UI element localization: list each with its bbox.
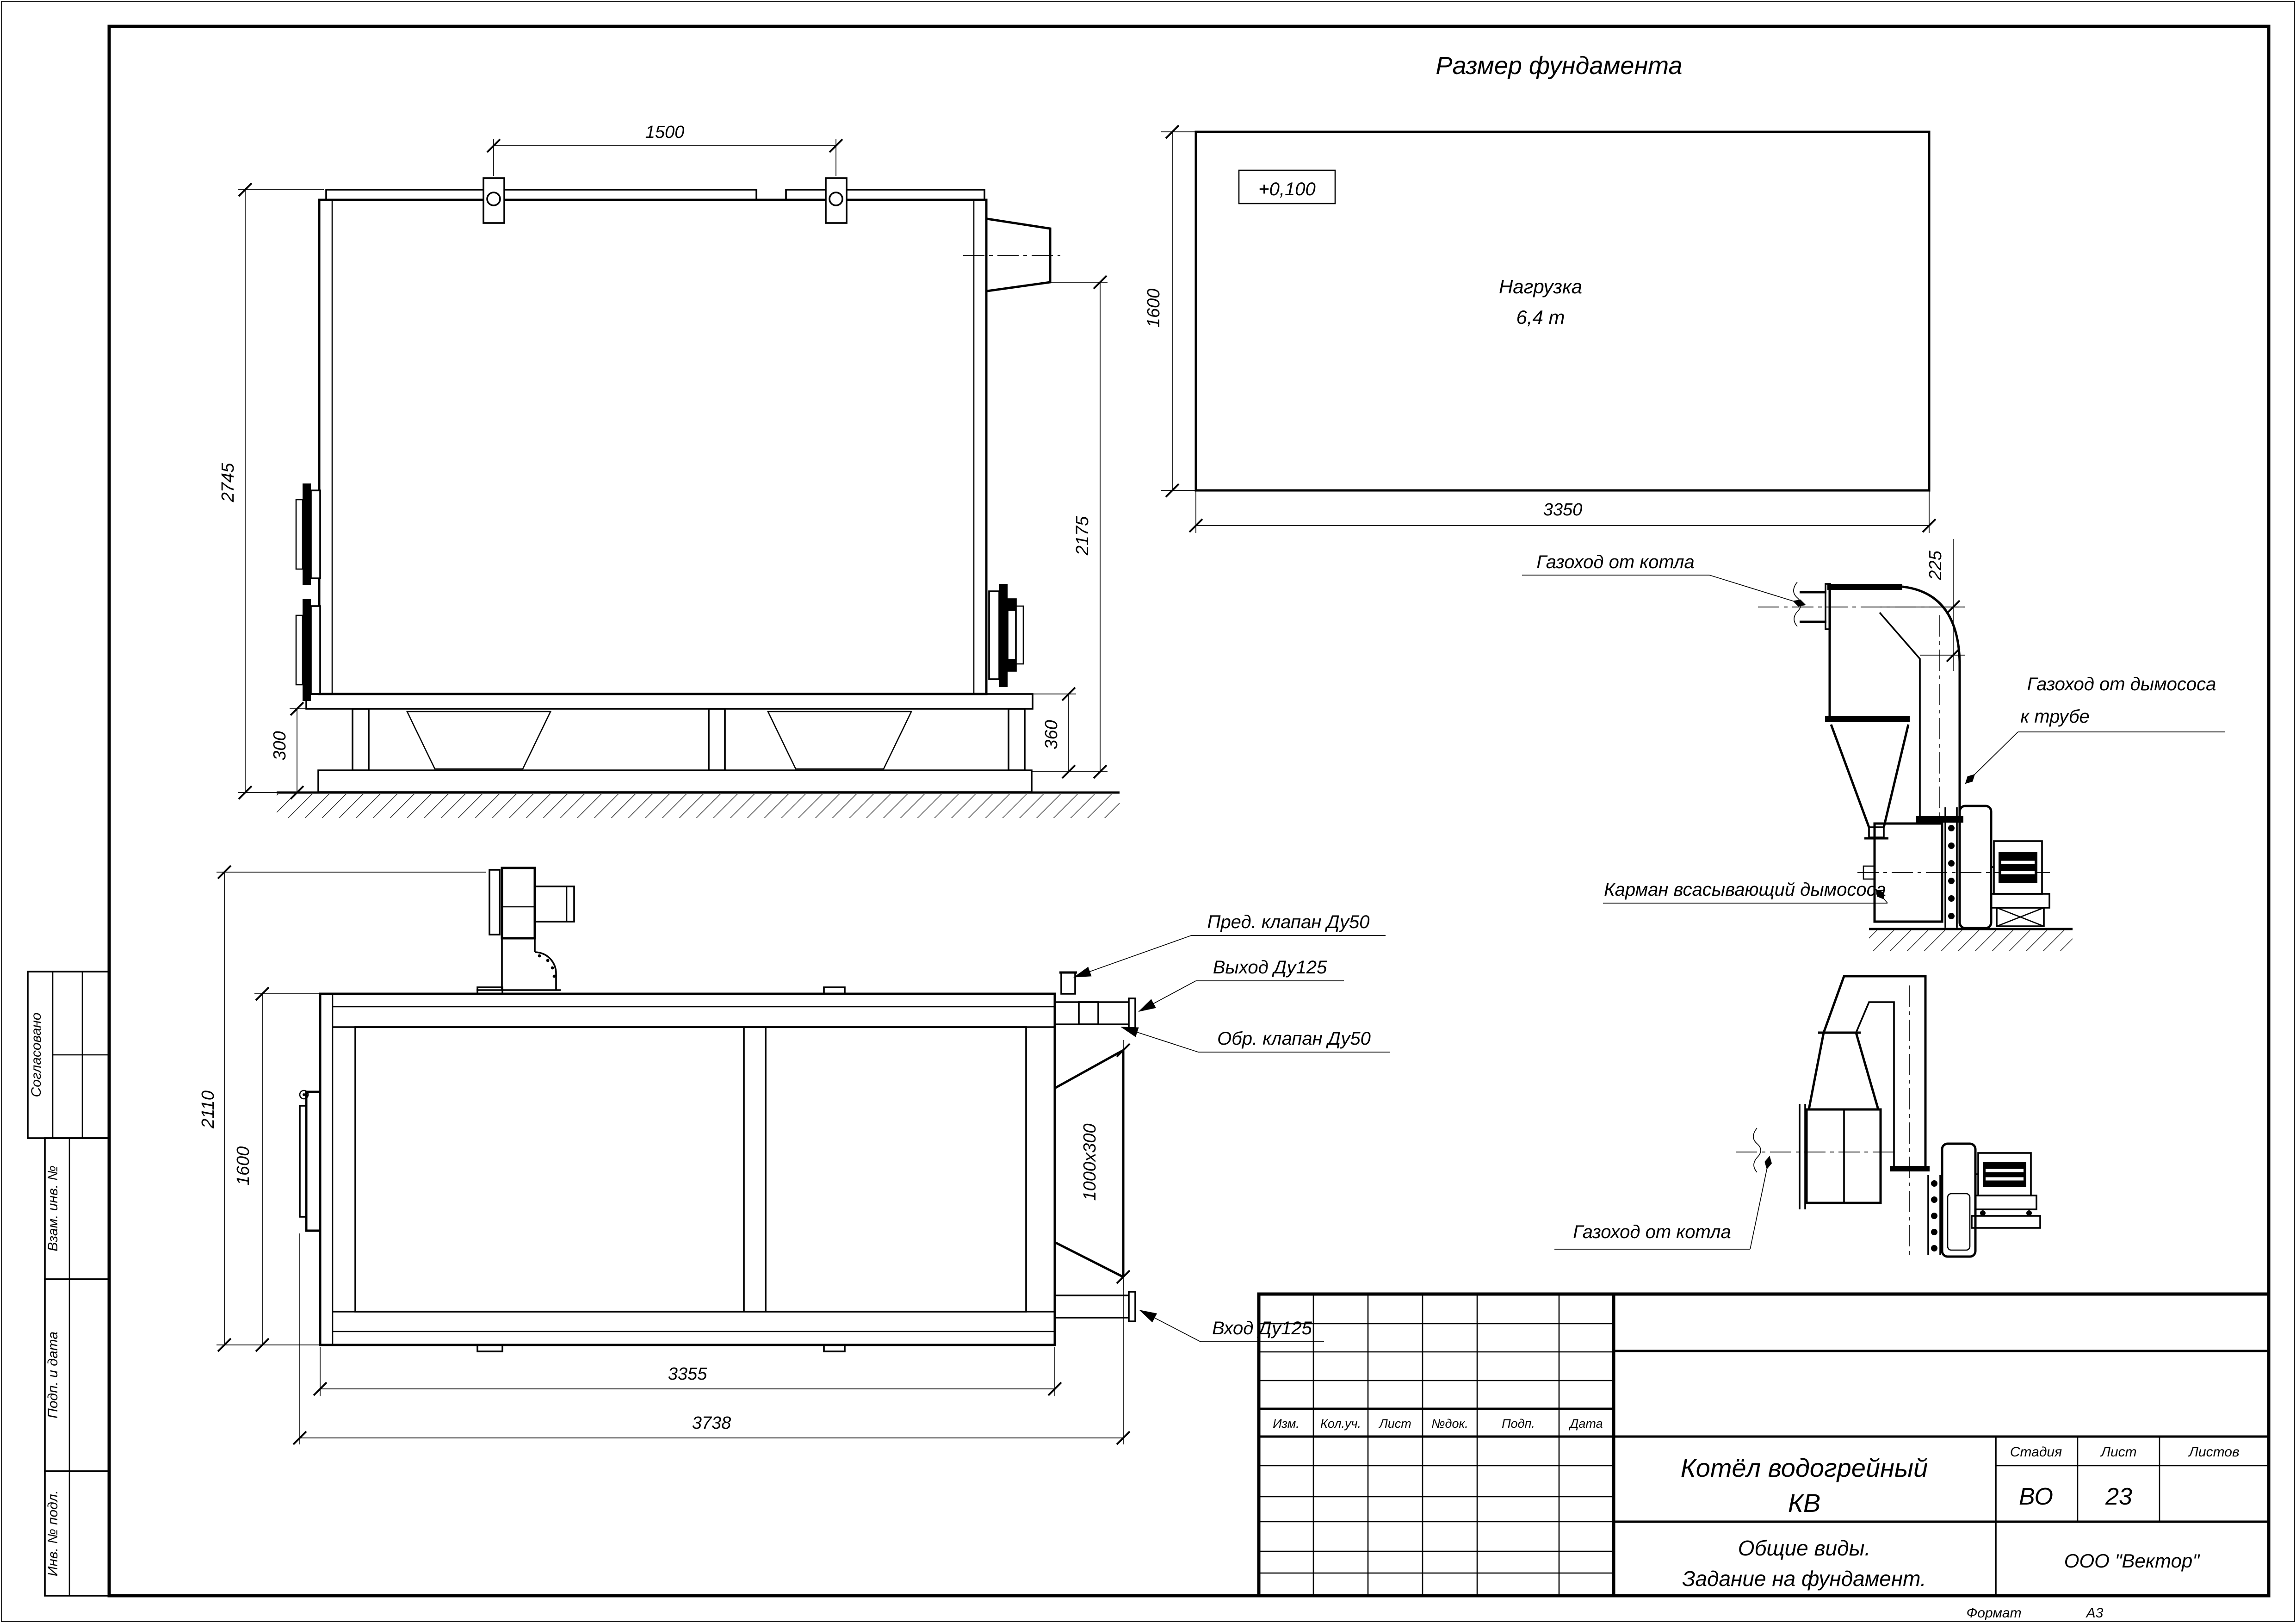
dim-3350: 3350 [1543, 500, 1583, 520]
fan-housing [1960, 806, 1991, 928]
rev-header-podp: Подп. [1502, 1417, 1535, 1431]
dim-1500: 1500 [645, 123, 685, 142]
doc-title-line2: Задание на фундамент. [1682, 1567, 1926, 1591]
doc-name-line2: КВ [1788, 1488, 1820, 1518]
flue-outlet [963, 219, 1060, 291]
plan-body [320, 994, 1055, 1345]
rev-header-izm: Изм. [1273, 1417, 1300, 1431]
left-flanges [296, 483, 320, 701]
label-flue-to-stack-1: Газоход от дымососа [2027, 674, 2216, 694]
drawing-sheet: Согласовано Взам. инв. № Подп. и дата Ин… [0, 0, 2296, 1623]
dim-3738: 3738 [692, 1413, 731, 1433]
stamp-sign-date: Подп. и дата [45, 1332, 61, 1419]
support-frame [277, 694, 1120, 818]
boiler-body [319, 200, 986, 694]
doc-name-line1: Котёл водогрейный [1681, 1453, 1928, 1482]
dim-360: 360 [1042, 720, 1061, 749]
rev-header-koluch: Кол.уч. [1320, 1417, 1361, 1431]
rev-header-ndok: №док. [1431, 1417, 1468, 1431]
dim-225: 225 [1926, 550, 1945, 580]
dim-1600-plan: 1600 [234, 1146, 253, 1186]
dim-1600-foundation: 1600 [1144, 289, 1163, 328]
dim-2175: 2175 [1073, 516, 1092, 556]
sheet-header: Лист [2100, 1444, 2136, 1460]
label-flue-from-boiler-upper: Газоход от котла [1536, 552, 1694, 572]
level-mark: +0,100 [1258, 179, 1315, 199]
format-value: А3 [2086, 1605, 2104, 1621]
label-suction-pocket: Карман всасывающий дымососа [1604, 880, 1886, 900]
sheets-header: Листов [2188, 1444, 2239, 1460]
flue-detail-upper: 225 Газоход от котла Газоход от дымососа… [1522, 539, 2225, 951]
plan-dimensions: 2110 1600 3355 3738 1000x300 [198, 866, 1130, 1444]
dim-225-group: 225 [1880, 539, 1965, 671]
stamp-agreed: Согласовано [29, 1013, 44, 1097]
stage-value: ВО [2019, 1483, 2053, 1510]
plan-fan [477, 868, 574, 994]
sheet-value: 23 [2105, 1483, 2132, 1510]
company-name: ООО "Вектор" [2064, 1550, 2200, 1572]
load-label-2: 6,4 т [1516, 306, 1565, 328]
ground-hatch [277, 794, 1120, 818]
rev-header-list: Лист [1378, 1417, 1411, 1431]
right-flange [989, 584, 1023, 687]
format-label: Формат [1966, 1605, 2021, 1621]
label-flue-from-boiler-lower: Газоход от котла [1573, 1222, 1731, 1242]
label-flue-to-stack-2: к трубе [2020, 706, 2089, 727]
left-margin-stamps: Согласовано Взам. инв. № Подп. и дата Ин… [28, 972, 109, 1596]
stage-header: Стадия [2010, 1444, 2062, 1460]
stamp-subst-inv: Взам. инв. № [45, 1165, 61, 1251]
load-label-1: Нагрузка [1499, 276, 1582, 297]
title-block: Изм. Кол.уч. Лист №док. Подп. Дата Котёл… [1259, 1294, 2269, 1596]
boiler-side-view: 1500 2745 300 2175 360 [218, 123, 1120, 818]
boiler-plan-view: 2110 1600 3355 3738 1000x300 Пре [198, 866, 1390, 1444]
label-check-valve: Обр. клапан Ду50 [1217, 1028, 1371, 1049]
format-note: Формат А3 [1966, 1605, 2103, 1621]
dim-300: 300 [270, 731, 290, 760]
dim-2745: 2745 [218, 463, 238, 502]
label-safety-valve: Пред. клапан Ду50 [1207, 912, 1369, 932]
smoke-exhauster [1857, 806, 2073, 951]
dim-3355: 3355 [668, 1364, 707, 1384]
rev-header-data: Дата [1568, 1417, 1603, 1431]
page-title: Размер фундамента [1436, 52, 1682, 80]
label-outlet: Выход Ду125 [1213, 957, 1327, 978]
stamp-inv-orig: Инв. № подл. [45, 1490, 61, 1576]
label-inlet: Вход Ду125 [1212, 1318, 1312, 1338]
dim-1000x300: 1000x300 [1080, 1124, 1100, 1201]
foundation-plan: +0,100 Нагрузка 6,4 т 1600 3350 [1144, 125, 1936, 533]
flue-detail-lower: Газоход от котла [1554, 976, 2040, 1257]
dim-2110: 2110 [198, 1090, 218, 1129]
doc-title-line1: Общие виды. [1738, 1536, 1870, 1560]
smoke-exhauster-2 [1928, 1144, 2040, 1257]
